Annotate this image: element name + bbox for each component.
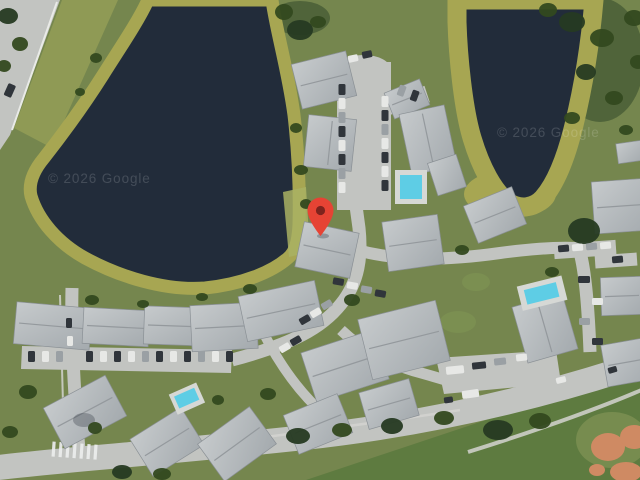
google-watermark-right: © 2026 Google <box>497 125 600 140</box>
satellite-map-view[interactable]: © 2026 Google © 2026 Google <box>0 0 640 480</box>
pin-inner-dot <box>316 206 325 215</box>
north-pool <box>395 170 427 204</box>
building-roof <box>303 115 356 172</box>
building-roof <box>591 178 640 234</box>
map-canvas: © 2026 Google © 2026 Google <box>0 0 640 480</box>
google-watermark-left: © 2026 Google <box>48 171 151 186</box>
building-roof <box>382 214 444 271</box>
building-roof <box>82 307 150 346</box>
building-roof <box>600 276 640 315</box>
building-roof <box>616 140 640 163</box>
building-roof <box>13 302 92 350</box>
building-roof <box>601 337 640 387</box>
